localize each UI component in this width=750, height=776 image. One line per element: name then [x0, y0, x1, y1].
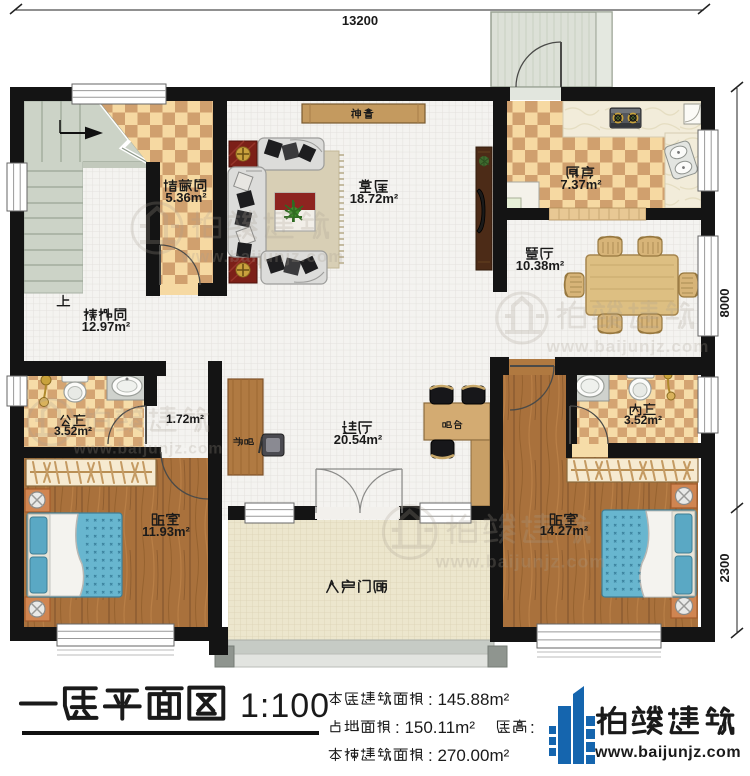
- svg-text:1.72m²: 1.72m²: [166, 412, 204, 426]
- svg-text:www.baijunjz.com: www.baijunjz.com: [546, 337, 710, 356]
- svg-text:20.54m²: 20.54m²: [334, 432, 383, 447]
- svg-text:3.52m²: 3.52m²: [624, 413, 662, 427]
- svg-text:1:100: 1:100: [240, 687, 330, 725]
- svg-text:www.baijunjz.com: www.baijunjz.com: [181, 247, 345, 266]
- svg-text:: 150.11m²: : 150.11m²: [395, 718, 475, 737]
- svg-text:: 270.00m²: : 270.00m²: [428, 746, 510, 765]
- svg-text:: 145.88m²: : 145.88m²: [428, 690, 510, 709]
- svg-text:www.baijunjz.com: www.baijunjz.com: [435, 552, 607, 572]
- svg-text:www.baijunjz.com: www.baijunjz.com: [594, 744, 741, 761]
- svg-text:10.38m²: 10.38m²: [516, 258, 565, 273]
- svg-text:14.27m²: 14.27m²: [540, 523, 589, 538]
- svg-text:7.37m²: 7.37m²: [560, 177, 602, 192]
- svg-text:12.97m²: 12.97m²: [82, 319, 131, 334]
- svg-text:8000: 8000: [717, 289, 732, 318]
- svg-text:www.baijunjz.com: www.baijunjz.com: [73, 440, 224, 457]
- svg-text:11.93m²: 11.93m²: [142, 524, 190, 539]
- svg-text:2300: 2300: [717, 554, 732, 583]
- svg-text:3.52m²: 3.52m²: [54, 424, 92, 438]
- svg-text:13200: 13200: [342, 13, 378, 28]
- svg-text:5.36m²: 5.36m²: [165, 190, 207, 205]
- svg-text::: :: [530, 718, 535, 737]
- svg-text:18.72m²: 18.72m²: [350, 191, 399, 206]
